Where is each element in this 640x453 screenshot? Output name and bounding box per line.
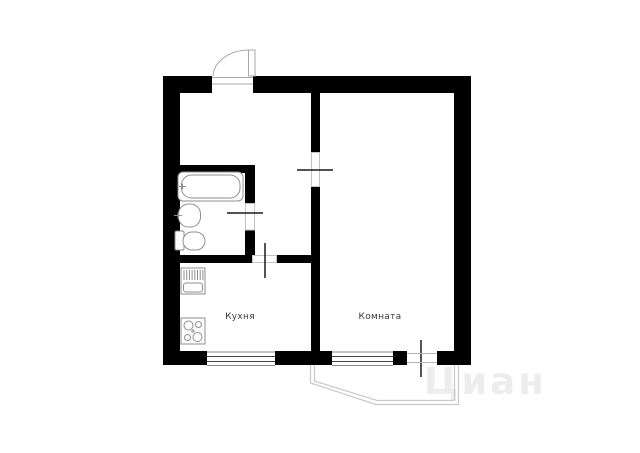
kitchen-sink — [181, 268, 205, 294]
stove — [181, 318, 205, 344]
balcony-outline-inner — [315, 365, 455, 401]
room-label: Комната — [359, 312, 402, 322]
balcony — [311, 365, 459, 405]
toilet — [175, 231, 205, 250]
entrance-door-leaf — [249, 50, 256, 76]
bathroom-door-opening — [246, 204, 255, 231]
entrance-door — [212, 50, 255, 84]
room-window — [332, 352, 393, 366]
bathroom-sink — [174, 204, 201, 227]
floorplan-symbols — [0, 0, 640, 453]
floorplan: Циан — [0, 0, 640, 453]
bathtub — [178, 172, 243, 201]
entrance-door-arc — [213, 50, 249, 76]
kitchen-label: Кухня — [225, 312, 255, 322]
balcony-outline-outer — [311, 365, 459, 405]
balcony-door-opening — [407, 354, 437, 363]
kitchen-window — [207, 352, 275, 366]
